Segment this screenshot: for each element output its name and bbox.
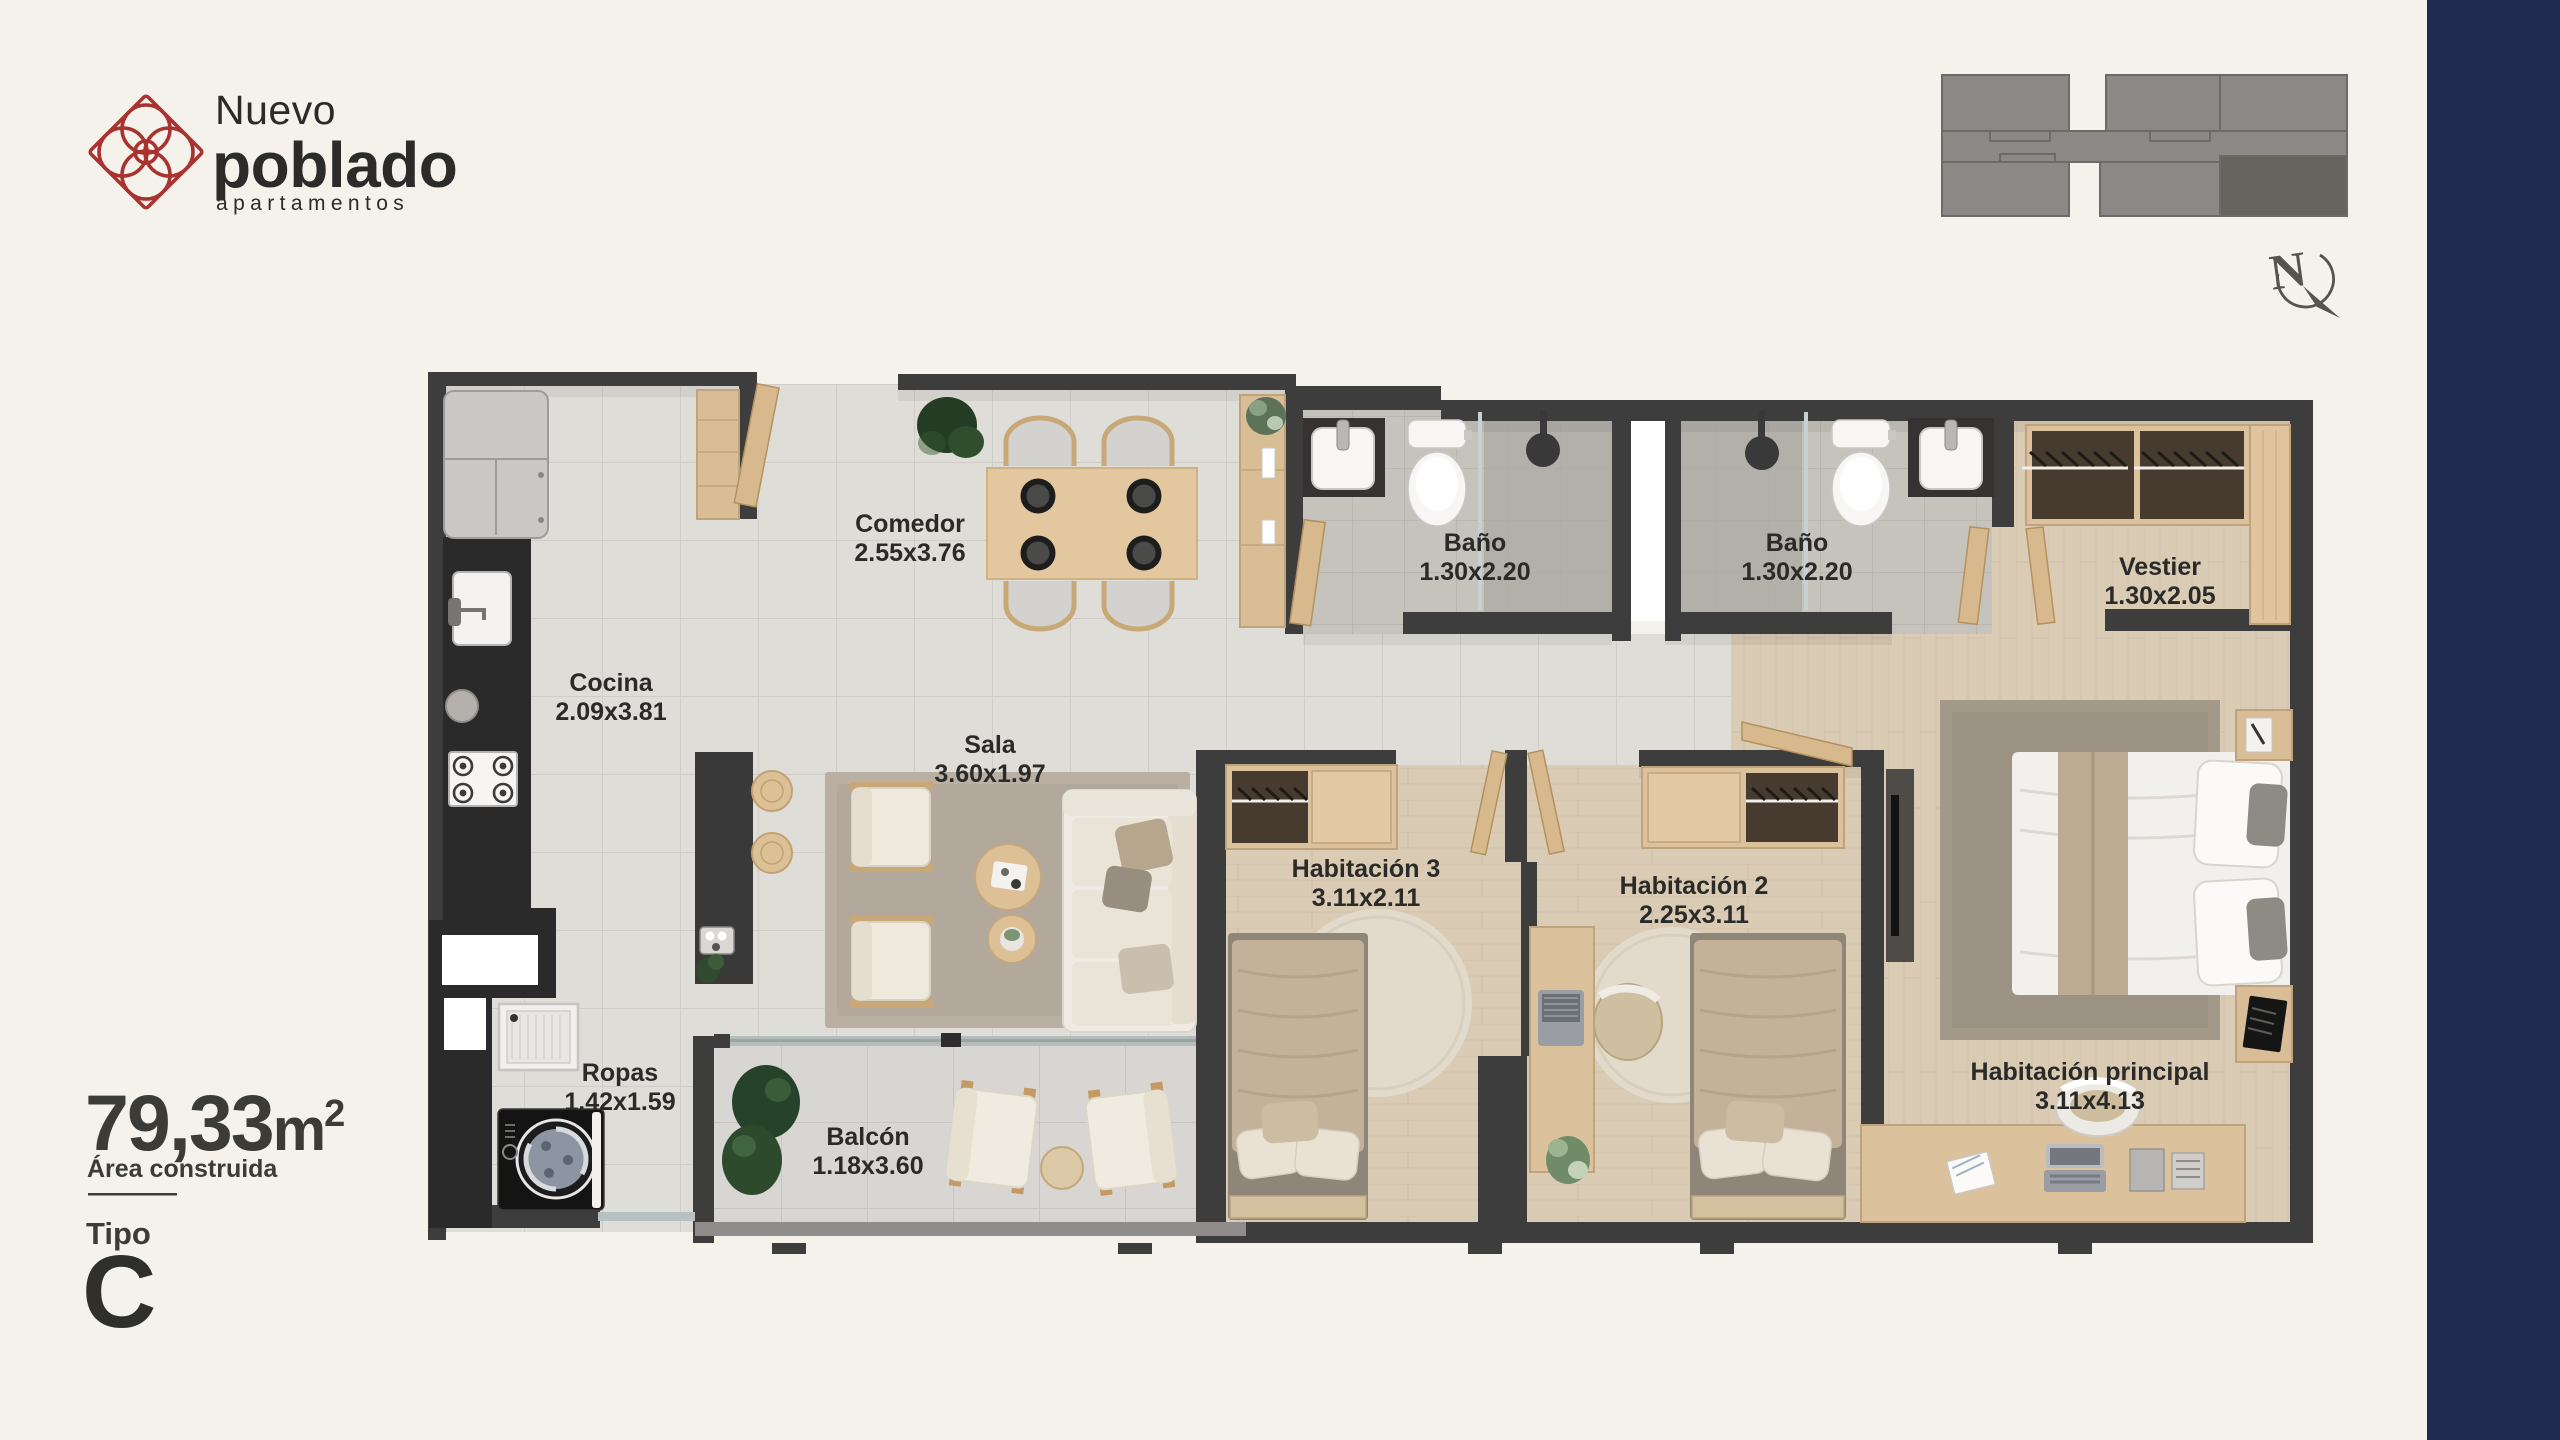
svg-text:Baño: Baño [1444, 529, 1507, 557]
svg-text:Nuevo: Nuevo [215, 87, 336, 133]
svg-text:3.11x2.11: 3.11x2.11 [1312, 884, 1421, 912]
svg-text:Cocina: Cocina [569, 669, 653, 697]
svg-text:1.42x1.59: 1.42x1.59 [564, 1088, 675, 1116]
svg-text:Vestier: Vestier [2119, 553, 2201, 581]
svg-text:Sala: Sala [964, 731, 1017, 759]
svg-text:2.55x3.76: 2.55x3.76 [854, 539, 965, 567]
svg-text:apartamentos: apartamentos [216, 192, 409, 215]
svg-text:Habitación principal: Habitación principal [1971, 1058, 2210, 1086]
svg-text:Habitación 3: Habitación 3 [1292, 855, 1441, 883]
svg-text:Ropas: Ropas [582, 1059, 658, 1087]
svg-text:1.30x2.20: 1.30x2.20 [1419, 558, 1530, 586]
svg-text:Comedor: Comedor [855, 510, 965, 538]
svg-text:3.60x1.97: 3.60x1.97 [934, 760, 1045, 788]
svg-text:1.18x3.60: 1.18x3.60 [812, 1152, 923, 1180]
svg-text:N: N [2266, 240, 2310, 300]
svg-text:Baño: Baño [1766, 529, 1829, 557]
svg-text:2.25x3.11: 2.25x3.11 [1639, 901, 1749, 929]
svg-text:2.09x3.81: 2.09x3.81 [555, 698, 666, 726]
svg-text:Habitación 2: Habitación 2 [1620, 872, 1769, 900]
svg-text:Área construida: Área construida [87, 1154, 278, 1183]
svg-text:C: C [82, 1234, 156, 1349]
svg-text:1.30x2.05: 1.30x2.05 [2104, 582, 2215, 610]
svg-text:poblado: poblado [212, 129, 457, 201]
svg-text:Balcón: Balcón [826, 1123, 909, 1151]
svg-text:1.30x2.20: 1.30x2.20 [1741, 558, 1852, 586]
svg-text:3.11x4.13: 3.11x4.13 [2035, 1087, 2145, 1115]
